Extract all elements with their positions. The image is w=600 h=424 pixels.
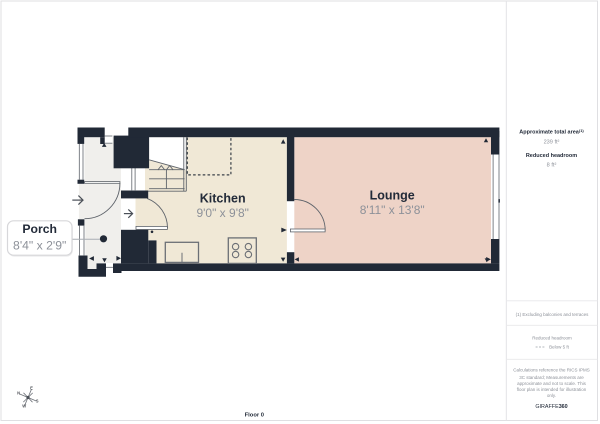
svg-text:8'4" x 2'9": 8'4" x 2'9" [13,239,66,253]
svg-text:E: E [30,386,33,391]
svg-text:Lounge: Lounge [370,189,415,203]
svg-text:only.: only. [547,393,556,398]
svg-text:Calculations reference the RIC: Calculations reference the RICS IPMS [513,368,590,373]
svg-text:8'11" x 13'8": 8'11" x 13'8" [360,203,425,217]
svg-text:(1) Excluding balconies and te: (1) Excluding balconies and terraces [516,312,590,317]
svg-text:Approximate total area(1): Approximate total area(1) [519,128,584,136]
svg-text:9'0" x 9'8": 9'0" x 9'8" [196,206,248,220]
svg-text:Reduced headroom: Reduced headroom [532,336,572,341]
svg-text:N: N [17,391,20,396]
svg-text:S: S [36,399,39,404]
svg-text:3C standard; Measurements are: 3C standard; Measurements are [519,375,584,380]
svg-text:approximate and not to scale.: approximate and not to scale. This [517,381,586,386]
svg-text:Porch: Porch [22,222,57,236]
svg-text:W: W [22,404,26,409]
svg-text:floor plan is intended for ill: floor plan is intended for illustration [517,387,587,392]
svg-text:239 ft²: 239 ft² [544,140,560,146]
svg-text:Reduced headroom: Reduced headroom [526,153,577,159]
svg-text:Kitchen: Kitchen [200,192,246,206]
svg-text:8 ft²: 8 ft² [547,162,557,168]
svg-text:Below 5 ft: Below 5 ft [549,345,570,350]
svg-text:GIRAFFE360: GIRAFFE360 [535,404,567,410]
svg-text:Floor 0: Floor 0 [245,412,264,418]
